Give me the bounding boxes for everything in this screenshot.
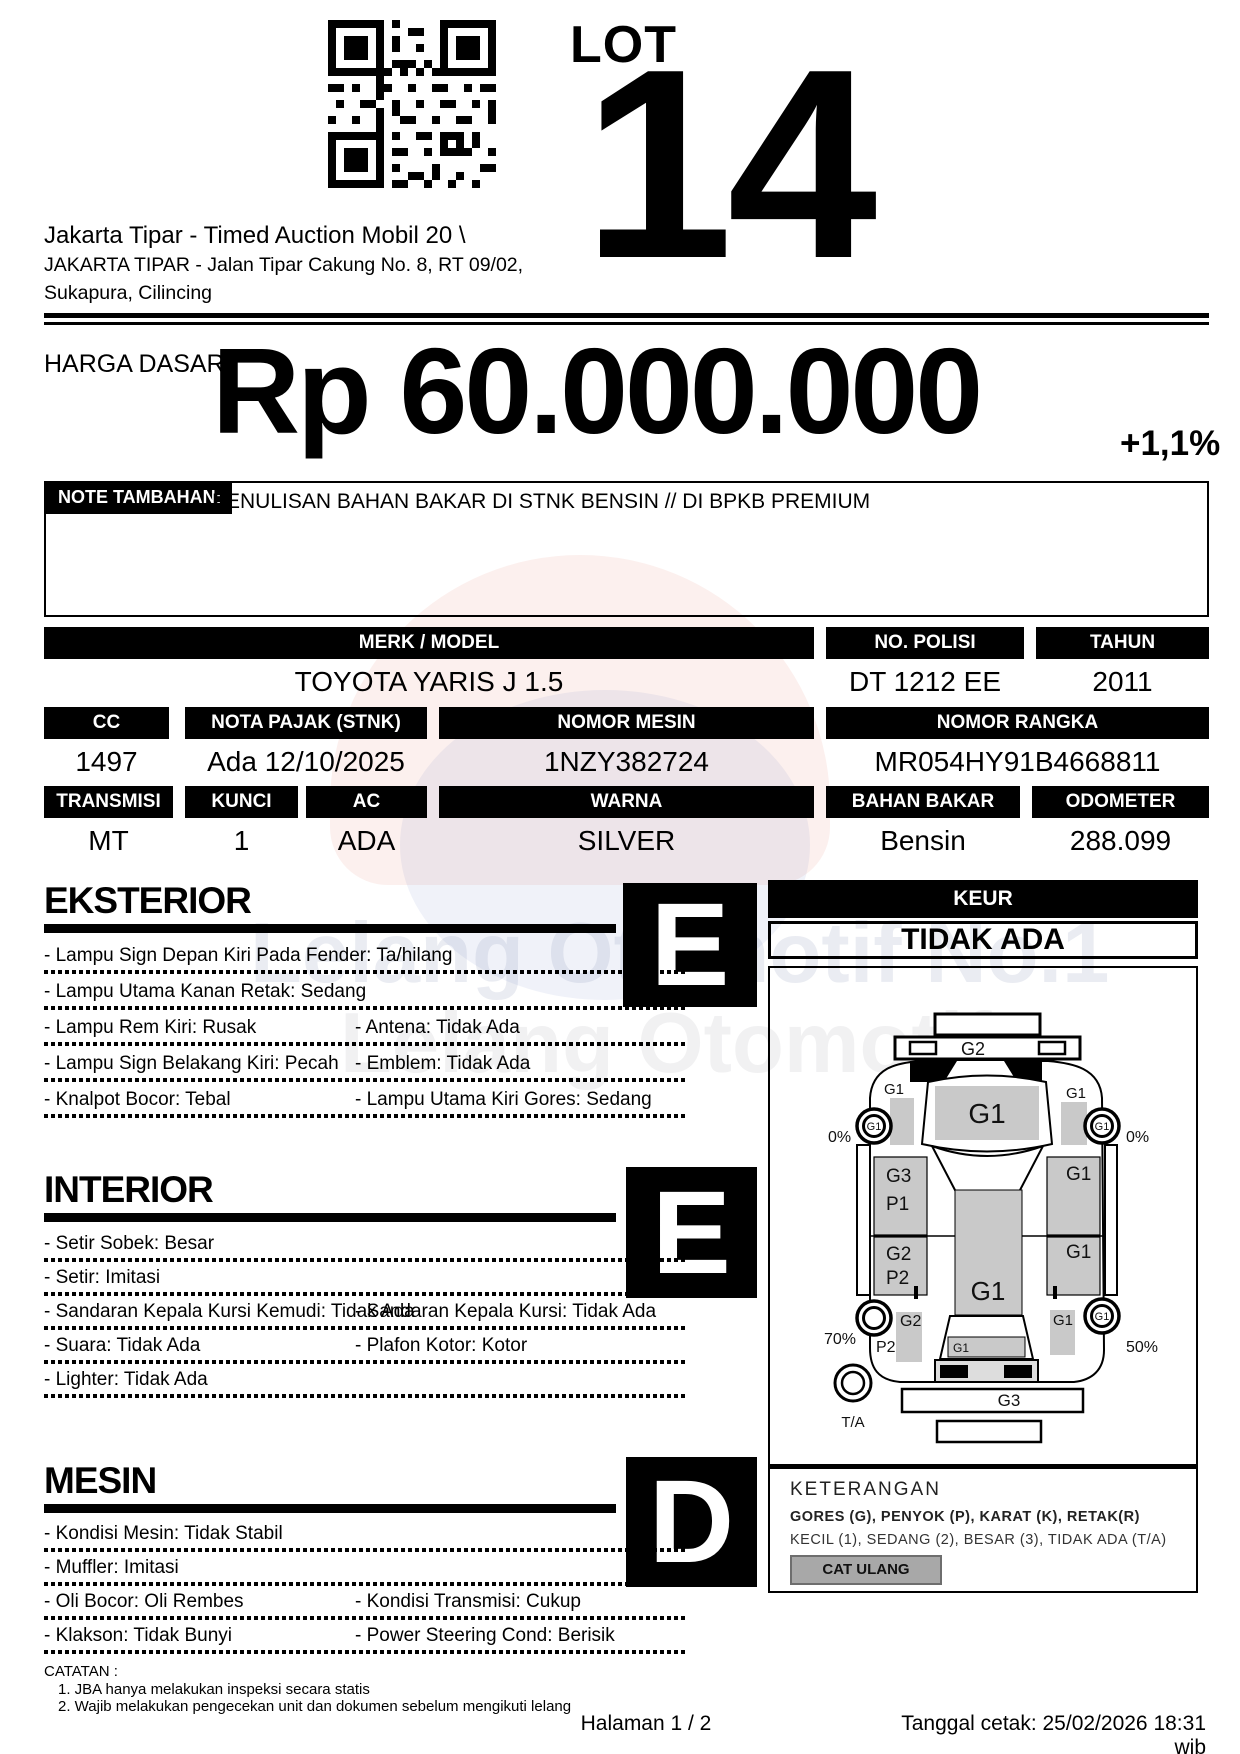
inspection-row: - Sandaran Kepala Kursi Kemudi: Tidak Ad…	[44, 1296, 685, 1330]
inspection-item: - Suara: Tidak Ada	[44, 1335, 200, 1357]
right-sill	[1105, 1145, 1117, 1295]
roof-grade: G1	[971, 1276, 1006, 1306]
value-no-polisi: DT 1212 EE	[826, 662, 1024, 702]
value-bahan-bakar: Bensin	[826, 821, 1020, 861]
col-header-nota-pajak: NOTA PAJAK (STNK)	[185, 707, 427, 739]
left-sill	[857, 1145, 870, 1295]
catatan-line-1: 1. JBA hanya melakukan inspeksi secara s…	[58, 1681, 370, 1698]
section-underline-eksterior	[44, 924, 616, 933]
inspection-item: - Kondisi Transmisi: Cukup	[355, 1591, 581, 1613]
inspection-row: - Setir: Imitasi	[44, 1262, 685, 1296]
section-title-interior: INTERIOR	[44, 1169, 213, 1211]
rear-bumper-grade: G3	[998, 1391, 1021, 1410]
col-header-kunci: KUNCI	[185, 786, 298, 818]
inspection-item: - Power Steering Cond: Berisik	[355, 1625, 615, 1647]
value-tahun: 2011	[1036, 662, 1209, 702]
rear-right-wheel: G1	[1085, 1299, 1119, 1333]
keterangan-line2: KECIL (1), SEDANG (2), BESAR (3), TIDAK …	[790, 1532, 1167, 1548]
right-front-wheel-grade: G1	[1095, 1121, 1110, 1133]
inspection-row: - Lampu Sign Depan Kiri Pada Fender: Ta/…	[44, 938, 685, 974]
section-title-mesin: MESIN	[44, 1460, 156, 1502]
rear-left-wheel	[857, 1301, 891, 1335]
spare-tire: T/A	[835, 1365, 871, 1431]
mesin-items: - Kondisi Mesin: Tidak Stabil - Muffler:…	[44, 1518, 685, 1654]
col-header-merk-model: MERK / MODEL	[44, 627, 814, 659]
inspection-item: - Oli Bocor: Oli Rembes	[44, 1591, 244, 1613]
inspection-row: - Kondisi Mesin: Tidak Stabil	[44, 1518, 685, 1552]
left-front-wheel-grade: G1	[867, 1121, 882, 1133]
keterangan-title: KETERANGAN	[790, 1479, 941, 1501]
keur-value: TIDAK ADA	[768, 921, 1198, 959]
inspection-row: - Oli Bocor: Oli Rembes - Kondisi Transm…	[44, 1586, 685, 1620]
auction-title: Jakarta Tipar - Timed Auction Mobil 20 \	[44, 222, 466, 250]
right-rear-wheel-grade: G1	[1095, 1311, 1110, 1323]
car-top-view-diagram: G2 G1 G1 G1 G3 P1 G2 P2 G1	[770, 968, 1196, 1464]
base-price-label: HARGA DASAR :	[44, 350, 239, 379]
inspection-row: - Klakson: Tidak Bunyi - Power Steering …	[44, 1620, 685, 1654]
inspection-item: - Lampu Sign Depan Kiri Pada Fender: Ta/…	[44, 945, 452, 967]
col-header-odometer: ODOMETER	[1032, 786, 1209, 818]
front-right-tread: 0%	[1126, 1129, 1149, 1146]
auction-address-line1: JAKARTA TIPAR - Jalan Tipar Cakung No. 8…	[44, 254, 523, 277]
col-header-nomor-rangka: NOMOR RANGKA	[826, 707, 1209, 739]
front-left-tread: 0%	[828, 1129, 851, 1146]
inspection-item: - Lampu Sign Belakang Kiri: Pecah	[44, 1053, 339, 1075]
rear-glass-grade: G1	[953, 1341, 969, 1355]
left-rear-quarter-grade2: P2	[876, 1339, 896, 1356]
right-rear-door-grade: G1	[1066, 1242, 1091, 1263]
keterangan-line1: GORES (G), PENYOK (P), KARAT (K), RETAK(…	[790, 1509, 1140, 1525]
col-header-ac: AC	[306, 786, 427, 818]
inspection-item: - Klakson: Tidak Bunyi	[44, 1625, 232, 1647]
lot-number: 14	[583, 30, 871, 300]
rear-left-tread: 70%	[824, 1331, 856, 1348]
front-left-wheel: G1	[857, 1109, 891, 1143]
inspection-row: - Lampu Rem Kiri: Rusak - Antena: Tidak …	[44, 1010, 685, 1046]
left-rear-quarter-grade: G2	[900, 1313, 921, 1330]
auction-lot-sheet: Lelang Otomotif No.1 Lelang Otomotif	[0, 0, 1240, 1754]
interior-items: - Setir Sobek: Besar - Setir: Imitasi - …	[44, 1228, 685, 1398]
inspection-row: - Setir Sobek: Besar	[44, 1228, 685, 1262]
rear-bumper	[902, 1389, 1083, 1412]
col-header-tahun: TAHUN	[1036, 627, 1209, 659]
print-date: Tanggal cetak: 25/02/2026 18:31 wib	[880, 1712, 1206, 1754]
col-header-cc: CC	[44, 707, 169, 739]
note-text: PENULISAN BAHAN BAKAR DI STNK BENSIN // …	[212, 490, 870, 514]
price-change-badge: +1,1%	[1120, 424, 1220, 464]
value-nomor-rangka: MR054HY91B4668811	[826, 742, 1209, 782]
rear-right-tread: 50%	[1126, 1339, 1158, 1356]
col-header-warna: WARNA	[439, 786, 814, 818]
catatan-line-2: 2. Wajib melakukan pengecekan unit dan d…	[58, 1698, 571, 1715]
inspection-item: - Lampu Rem Kiri: Rusak	[44, 1017, 256, 1039]
left-front-door-grade: G3	[886, 1166, 911, 1187]
inspection-item: - Lampu Utama Kiri Gores: Sedang	[355, 1089, 652, 1111]
page-number: Halaman 1 / 2	[536, 1712, 756, 1736]
value-nota-pajak: Ada 12/10/2025	[185, 742, 427, 782]
value-kunci: 1	[185, 821, 298, 861]
col-header-transmisi: TRANSMISI	[44, 786, 173, 818]
col-header-bahan-bakar: BAHAN BAKAR	[826, 786, 1020, 818]
front-license-plate	[935, 1014, 1040, 1035]
section-underline-mesin	[44, 1504, 616, 1513]
rear-license-plate	[937, 1421, 1041, 1442]
inspection-item: - Lampu Utama Kanan Retak: Sedang	[44, 981, 366, 1003]
col-header-no-polisi: NO. POLISI	[826, 627, 1024, 659]
inspection-row: - Lighter: Tidak Ada	[44, 1364, 685, 1398]
spare-tire-label: T/A	[841, 1414, 864, 1431]
inspection-row: - Knalpot Bocor: Tebal - Lampu Utama Kir…	[44, 1082, 685, 1118]
front-bumper-grade: G2	[961, 1039, 985, 1059]
keur-header: KEUR	[768, 880, 1198, 918]
left-front-fender-grade: G1	[884, 1081, 904, 1098]
value-nomor-mesin: 1NZY382724	[439, 742, 814, 782]
auction-address-line2: Sukapura, Cilincing	[44, 282, 212, 305]
left-rear-door-grade2: P2	[886, 1268, 909, 1289]
right-front-fender-panel	[1061, 1102, 1087, 1145]
left-rear-door-grade: G2	[886, 1244, 911, 1265]
value-odometer: 288.099	[1032, 821, 1209, 861]
section-underline-interior	[44, 1213, 616, 1222]
catatan-label: CATATAN :	[44, 1663, 118, 1680]
qr-code	[328, 20, 496, 188]
value-cc: 1497	[44, 742, 169, 782]
left-front-door-grade2: P1	[886, 1194, 909, 1215]
inspection-item: - Muffler: Imitasi	[44, 1557, 179, 1579]
eksterior-items: - Lampu Sign Depan Kiri Pada Fender: Ta/…	[44, 938, 685, 1118]
front-right-wheel: G1	[1085, 1109, 1119, 1143]
inspection-item: - Antena: Tidak Ada	[355, 1017, 520, 1039]
inspection-item: - Emblem: Tidak Ada	[355, 1053, 530, 1075]
inspection-item: - Kondisi Mesin: Tidak Stabil	[44, 1523, 283, 1545]
right-rear-quarter-grade: G1	[1053, 1312, 1073, 1329]
inspection-row: - Suara: Tidak Ada - Plafon Kotor: Kotor	[44, 1330, 685, 1364]
inspection-item: - Lighter: Tidak Ada	[44, 1369, 208, 1391]
inspection-row: - Muffler: Imitasi	[44, 1552, 685, 1586]
value-merk-model: TOYOTA YARIS J 1.5	[44, 662, 814, 702]
inspection-item: - Setir Sobek: Besar	[44, 1233, 214, 1255]
note-box: NOTE TAMBAHAN: PENULISAN BAHAN BAKAR DI …	[44, 481, 1209, 617]
value-transmisi: MT	[44, 821, 173, 861]
damage-diagram-box: G2 G1 G1 G1 G3 P1 G2 P2 G1	[768, 966, 1198, 1466]
inspection-item: - Setir: Imitasi	[44, 1267, 160, 1289]
value-warna: SILVER	[439, 821, 814, 861]
inspection-item: - Plafon Kotor: Kotor	[355, 1335, 527, 1357]
right-front-fender-grade: G1	[1066, 1085, 1086, 1102]
value-ac: ADA	[306, 821, 427, 861]
inspection-row: - Lampu Utama Kanan Retak: Sedang	[44, 974, 685, 1010]
base-price-amount: Rp 60.000.000	[212, 330, 980, 452]
note-label: NOTE TAMBAHAN:	[46, 483, 232, 514]
left-front-fender-panel	[890, 1098, 914, 1145]
inspection-item: - Sandaran Kepala Kursi: Tidak Ada	[355, 1301, 656, 1323]
section-title-eksterior: EKSTERIOR	[44, 880, 251, 922]
inspection-row: - Lampu Sign Belakang Kiri: Pecah - Embl…	[44, 1046, 685, 1082]
hood-grade: G1	[968, 1098, 1005, 1129]
keterangan-box: KETERANGAN GORES (G), PENYOK (P), KARAT …	[768, 1466, 1198, 1593]
col-header-nomor-mesin: NOMOR MESIN	[439, 707, 814, 739]
cat-ulang-badge: CAT ULANG	[790, 1555, 942, 1585]
inspection-item: - Knalpot Bocor: Tebal	[44, 1089, 231, 1111]
right-front-door-grade: G1	[1066, 1164, 1091, 1185]
